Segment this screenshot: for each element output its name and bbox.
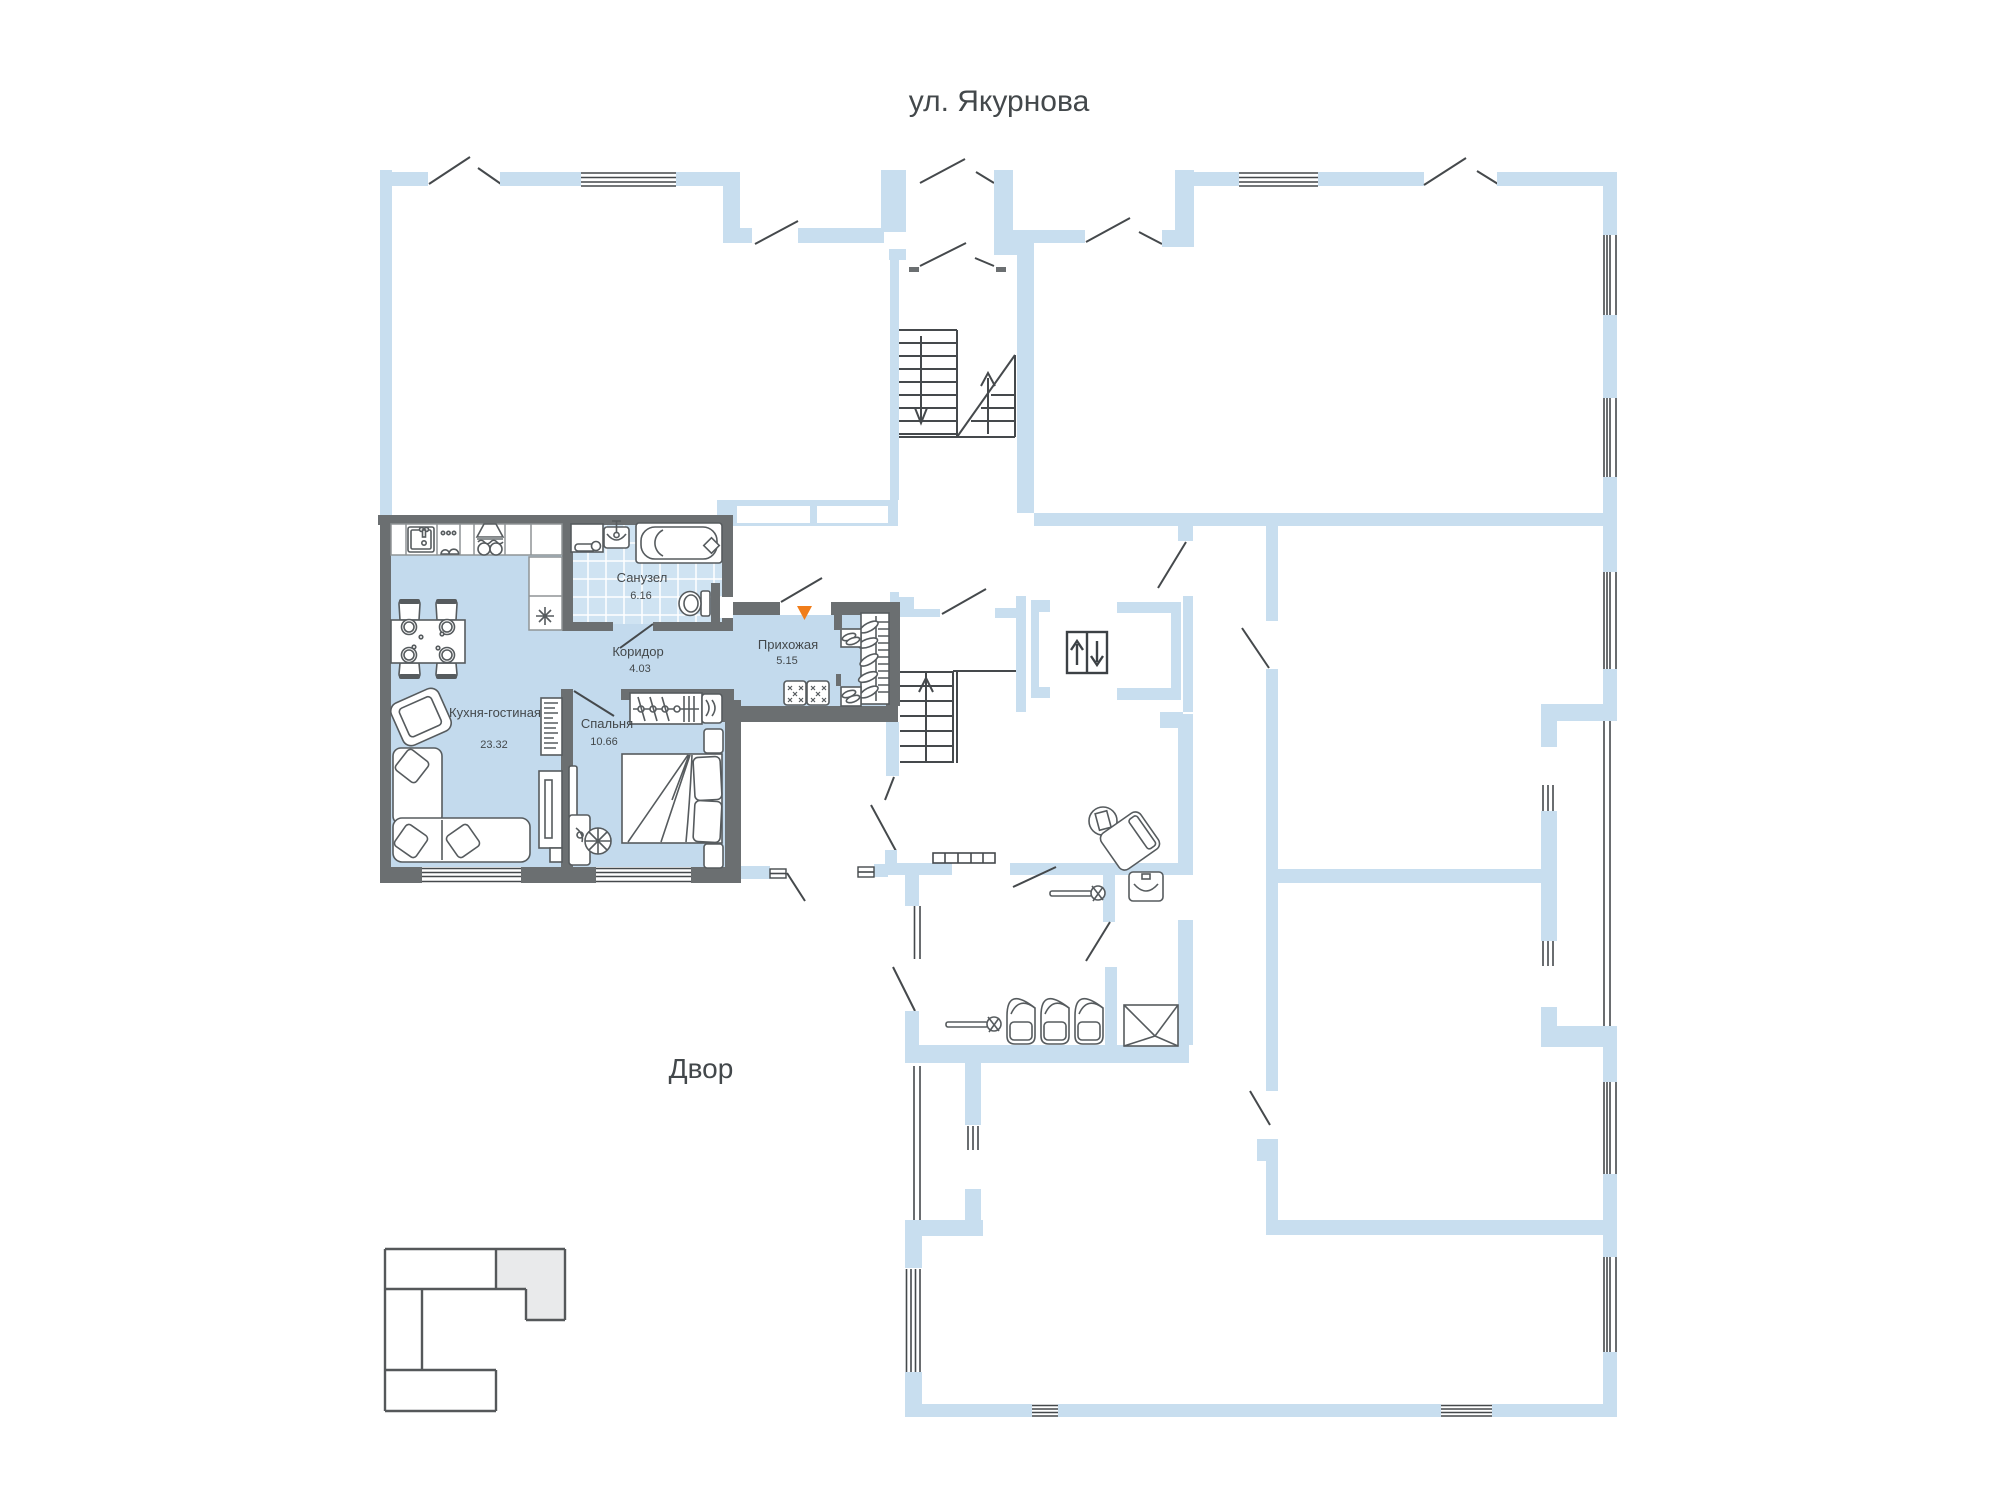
svg-text:Спальня: Спальня <box>581 716 633 731</box>
svg-text:Кухня-гостиная: Кухня-гостиная <box>449 705 541 720</box>
svg-text:10.66: 10.66 <box>590 736 618 748</box>
svg-text:Двор: Двор <box>669 1053 734 1084</box>
svg-text:5.15: 5.15 <box>776 655 797 667</box>
svg-text:23.32: 23.32 <box>480 739 508 751</box>
svg-text:4.03: 4.03 <box>629 663 650 675</box>
svg-text:Санузел: Санузел <box>617 570 668 585</box>
svg-text:Коридор: Коридор <box>612 644 663 659</box>
svg-text:6.16: 6.16 <box>630 590 651 602</box>
svg-text:ул. Якурнова: ул. Якурнова <box>909 85 1090 118</box>
svg-text:Прихожая: Прихожая <box>758 637 818 652</box>
